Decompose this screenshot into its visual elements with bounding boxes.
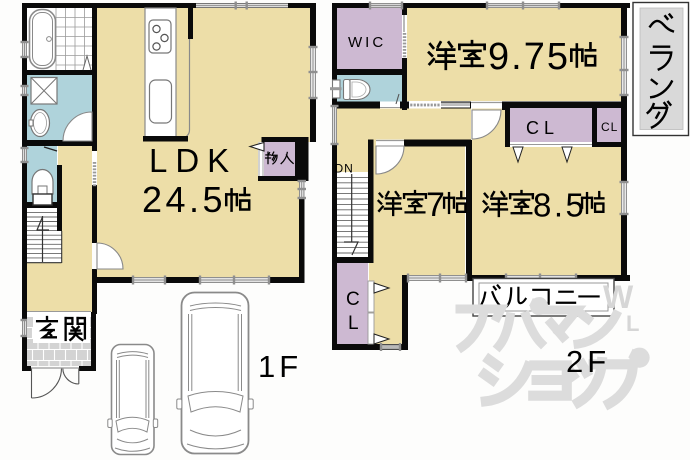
- svg-text:W: W: [603, 279, 634, 315]
- svg-text:C: C: [346, 289, 360, 310]
- svg-text:LDK: LDK: [149, 142, 237, 179]
- svg-text:8.5: 8.5: [533, 187, 586, 224]
- svg-text:CL: CL: [601, 120, 618, 134]
- svg-text:WIC: WIC: [348, 34, 386, 51]
- svg-text:2F: 2F: [566, 344, 610, 379]
- svg-text:9.75: 9.75: [488, 36, 570, 78]
- svg-text:7: 7: [426, 186, 445, 224]
- svg-text:1F: 1F: [258, 349, 302, 384]
- svg-text:L: L: [348, 313, 359, 334]
- svg-text:24.5: 24.5: [142, 179, 226, 220]
- svg-text:CL: CL: [526, 118, 559, 138]
- svg-text:L: L: [626, 311, 639, 336]
- svg-text:DN: DN: [335, 162, 354, 176]
